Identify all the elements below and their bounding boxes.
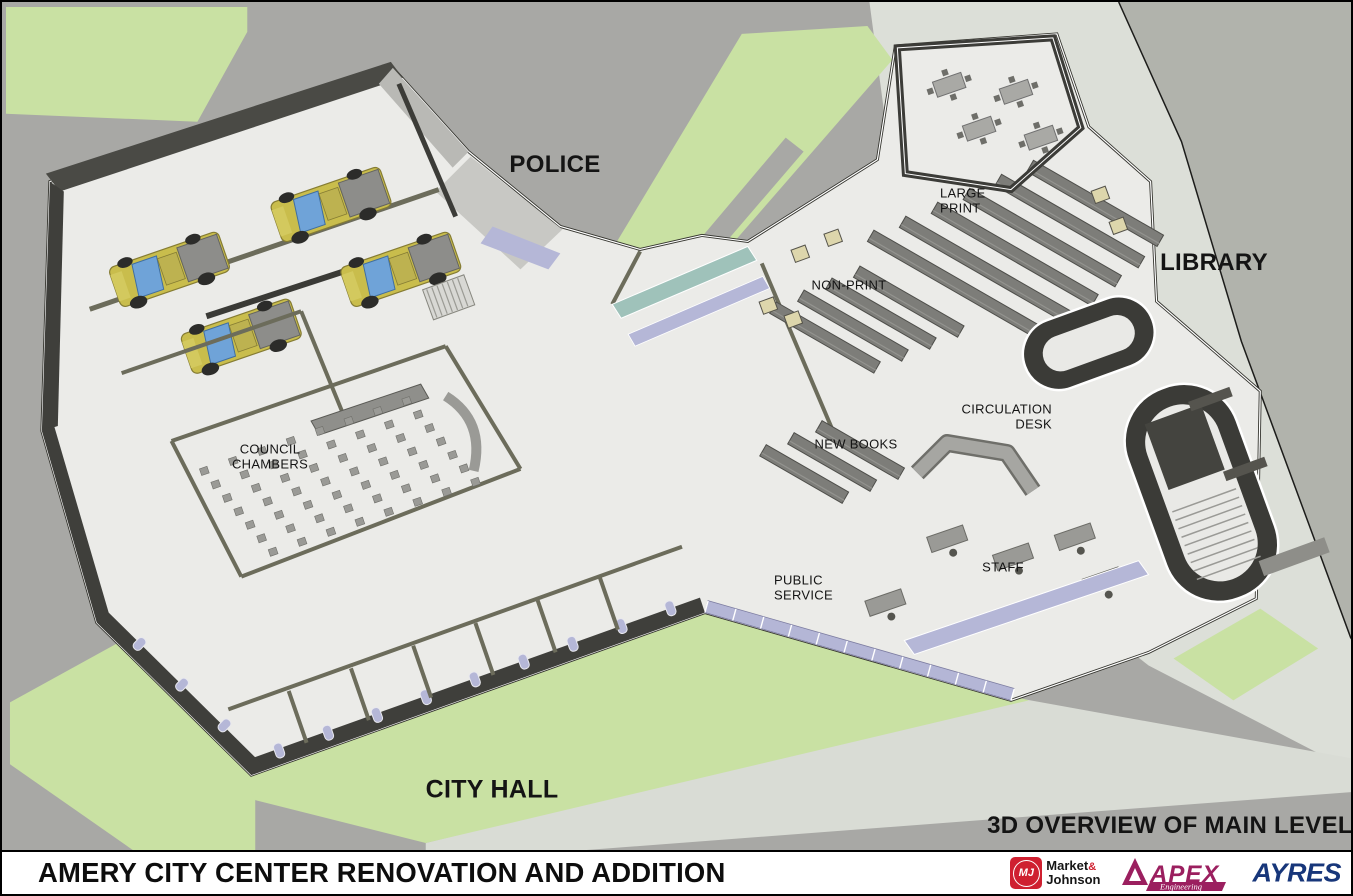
label-new-books: NEW BOOKS	[815, 436, 898, 451]
mj-mark-icon: MJ	[1010, 857, 1042, 889]
logo-strip: MJ Market& Johnson APEX Engineering AYRE…	[1010, 854, 1341, 892]
label-staff: STAFF	[982, 559, 1024, 574]
label-council-chambers: COUNCIL CHAMBERS	[232, 442, 308, 473]
label-city-hall: CITY HALL	[426, 775, 559, 805]
title-banner: AMERY CITY CENTER RENOVATION AND ADDITIO…	[2, 850, 1351, 894]
architectural-rendering-board: POLICE LIBRARY CITY HALL 3D OVERVIEW OF …	[0, 0, 1353, 896]
project-title: AMERY CITY CENTER RENOVATION AND ADDITIO…	[38, 857, 725, 889]
label-large-print: LARGE PRINT	[940, 186, 986, 217]
site-plan-scene	[2, 2, 1351, 852]
label-library: LIBRARY	[1160, 249, 1268, 277]
svg-text:Engineering: Engineering	[1159, 882, 1202, 892]
apex-mark-icon: APEX Engineering	[1120, 854, 1232, 892]
label-public-service: PUBLIC SERVICE	[774, 573, 833, 604]
ayres-logo: AYRES	[1252, 858, 1341, 889]
label-police: POLICE	[509, 151, 600, 179]
label-circulation-desk: CIRCULATION DESK	[962, 402, 1052, 433]
label-view-caption: 3D OVERVIEW OF MAIN LEVEL	[987, 812, 1353, 840]
market-johnson-logo: MJ Market& Johnson	[1010, 857, 1100, 889]
apex-engineering-logo: APEX Engineering	[1120, 854, 1232, 892]
label-non-print: NON-PRINT	[812, 277, 887, 292]
